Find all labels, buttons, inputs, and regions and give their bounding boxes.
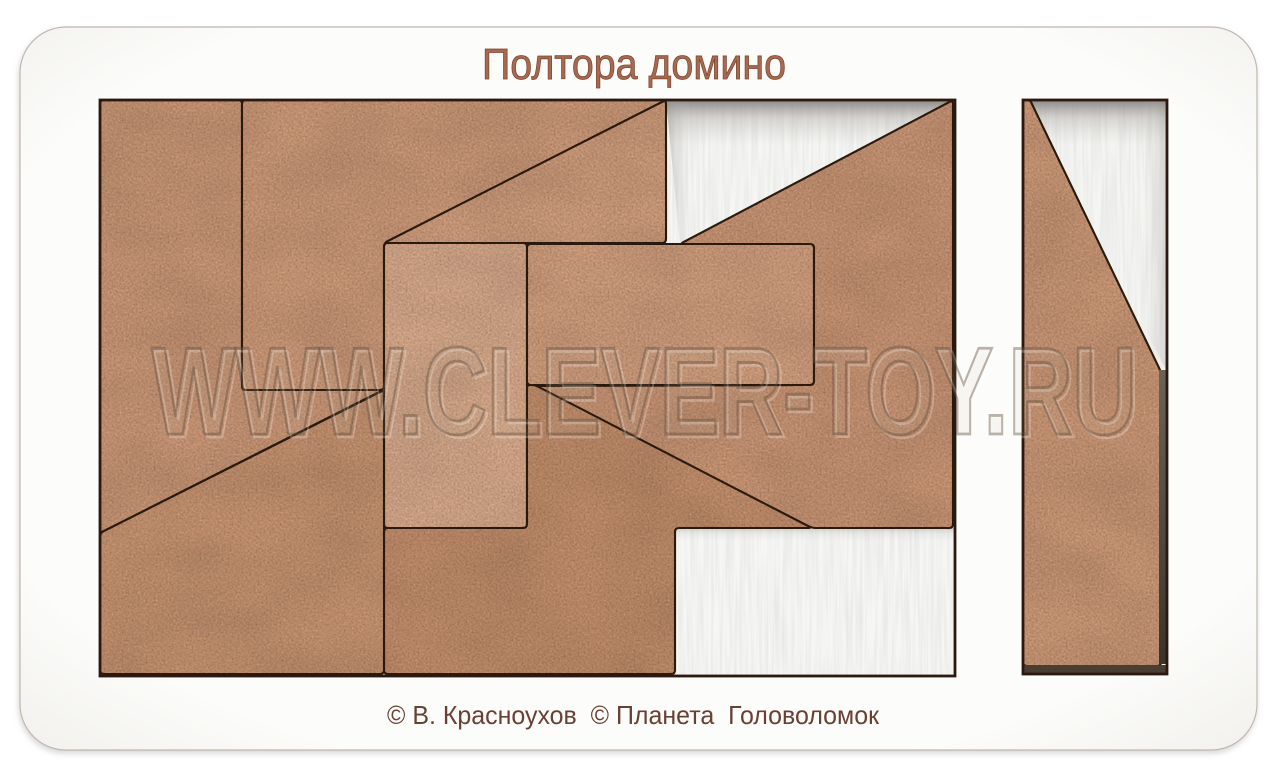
svg-text:WWW.CLEVER-TOY.RU: WWW.CLEVER-TOY.RU bbox=[152, 323, 1137, 461]
svg-text:Полтора домино: Полтора домино bbox=[482, 40, 786, 89]
svg-text:© В. Красноухов © Планета Го: © В. Красноухов © Планета Головоломок bbox=[387, 700, 880, 730]
